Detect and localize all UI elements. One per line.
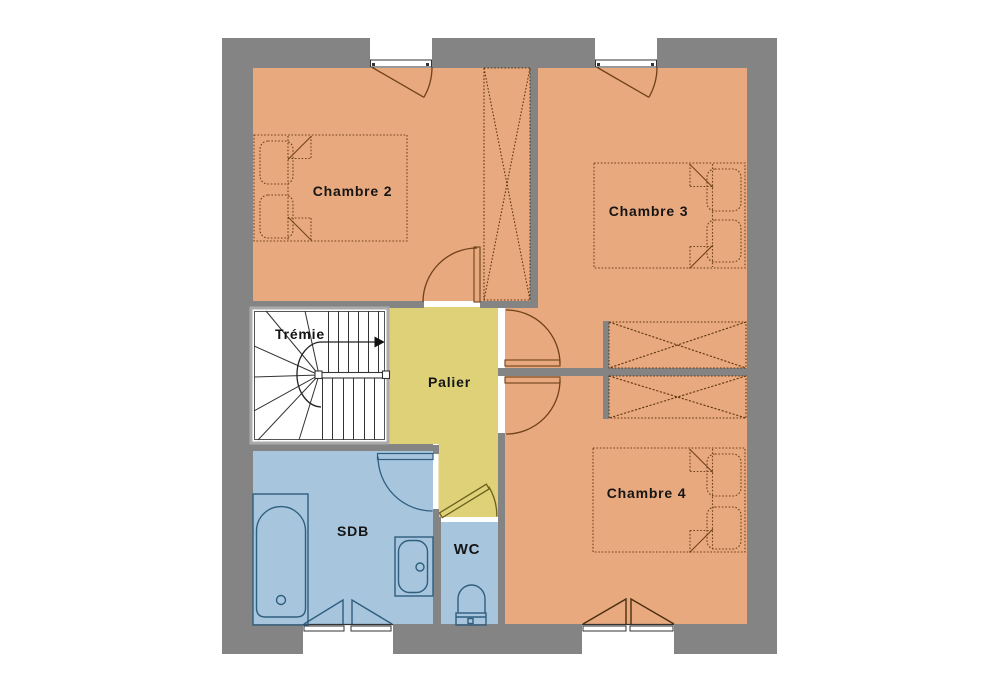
- svg-text:Chambre 2: Chambre 2: [313, 183, 393, 199]
- svg-text:Chambre 3: Chambre 3: [609, 203, 689, 219]
- svg-text:WC: WC: [454, 541, 481, 558]
- svg-text:Chambre 4: Chambre 4: [607, 485, 687, 501]
- svg-text:Trémie: Trémie: [275, 326, 325, 342]
- svg-text:SDB: SDB: [337, 523, 369, 539]
- svg-text:Palier: Palier: [428, 374, 471, 390]
